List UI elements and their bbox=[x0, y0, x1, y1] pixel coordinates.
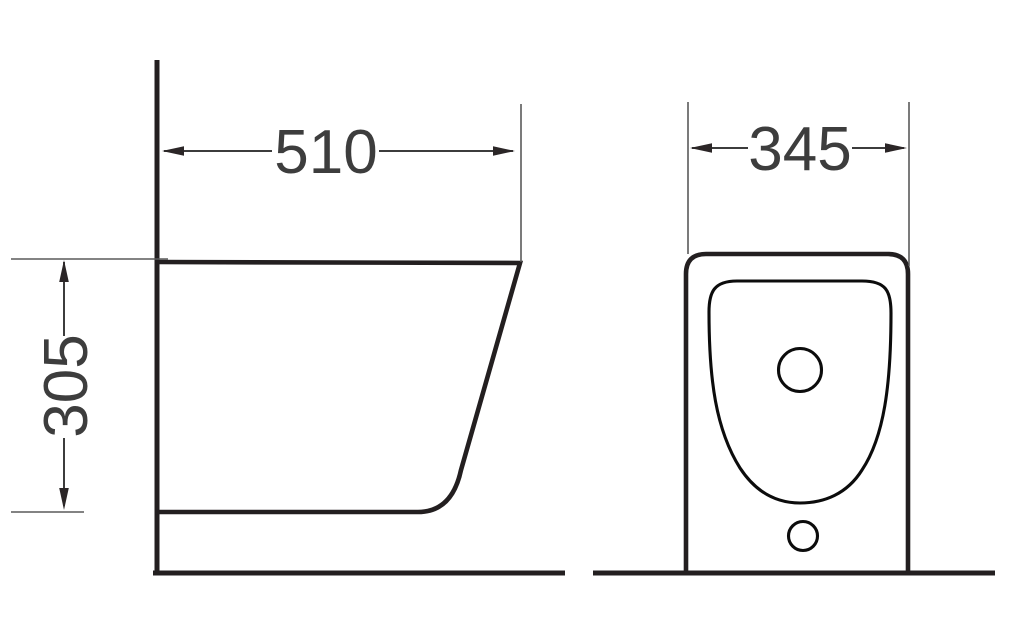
front-view: 345 bbox=[593, 102, 995, 573]
arrow-left-icon bbox=[162, 146, 184, 156]
dimension-label-510: 510 bbox=[274, 118, 377, 187]
dimension-305: 305 bbox=[11, 259, 168, 512]
dimension-510: 510 bbox=[162, 104, 521, 262]
technical-drawing: 510 305 bbox=[0, 0, 1034, 619]
small-hole bbox=[789, 522, 818, 551]
side-view: 510 305 bbox=[11, 60, 565, 575]
arrow-right-icon bbox=[885, 143, 907, 153]
side-body-outline bbox=[155, 262, 520, 512]
drawing-svg: 510 305 bbox=[0, 0, 1034, 619]
arrow-up-icon bbox=[59, 260, 69, 282]
arrow-down-icon bbox=[59, 488, 69, 510]
dimension-345: 345 bbox=[688, 102, 909, 266]
arrow-right-icon bbox=[493, 146, 515, 156]
arrow-left-icon bbox=[690, 143, 712, 153]
dimension-label-345: 345 bbox=[748, 115, 851, 184]
dimension-label-305: 305 bbox=[32, 334, 101, 437]
drain-hole bbox=[779, 349, 822, 392]
